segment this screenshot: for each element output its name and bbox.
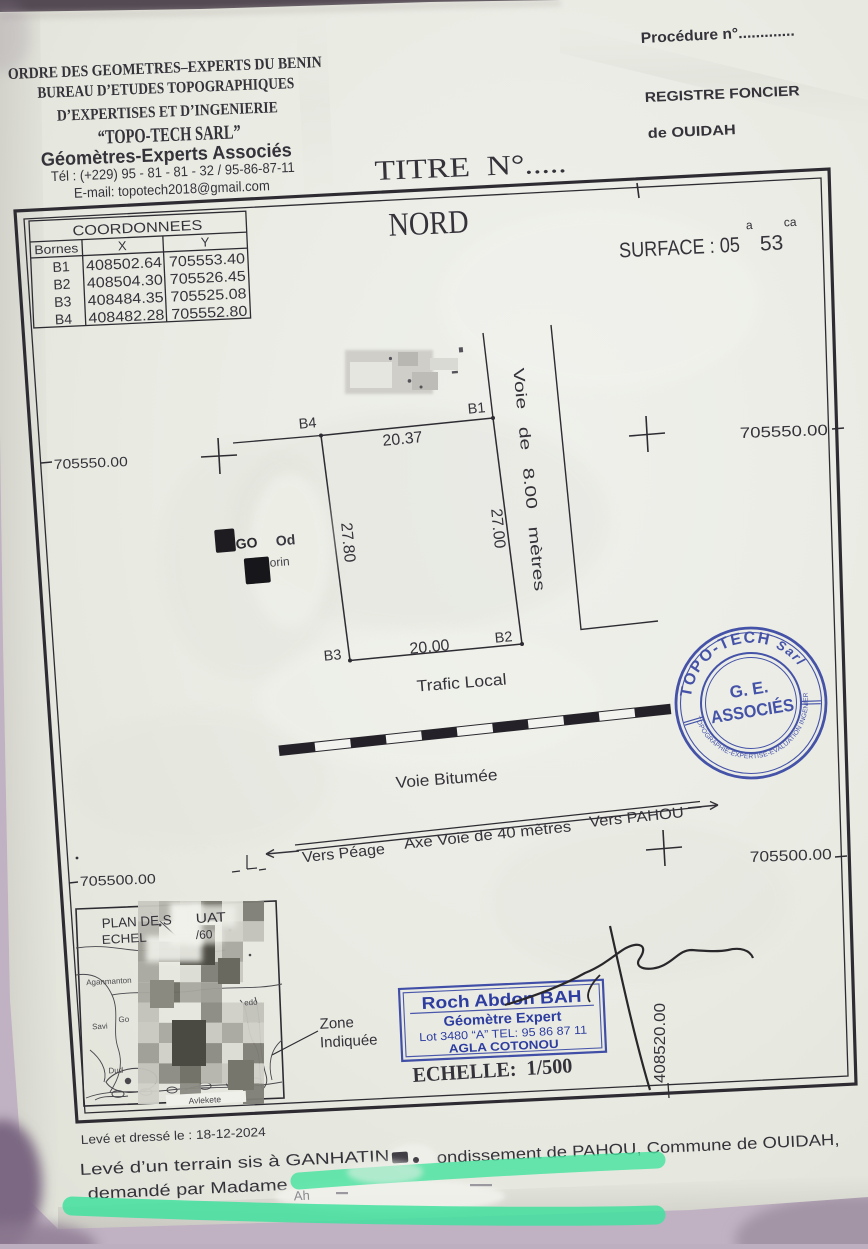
svg-text:edo: edo — [244, 998, 258, 1008]
svg-text:Bornes: Bornes — [34, 241, 79, 257]
svg-text:ECHEL: ECHEL — [101, 931, 147, 947]
svg-text:705550.00: 705550.00 — [54, 454, 129, 472]
svg-text:Zone: Zone — [319, 1014, 354, 1033]
svg-text:GO: GO — [235, 534, 258, 552]
svg-text:408520.00: 408520.00 — [652, 1003, 669, 1083]
svg-text:Avlekete: Avlekete — [188, 1094, 221, 1106]
svg-text:B2: B2 — [494, 629, 513, 646]
svg-text:Od: Od — [275, 531, 296, 549]
svg-text:Ah: Ah — [294, 1188, 311, 1204]
svg-text:705550.00: 705550.00 — [740, 422, 829, 442]
svg-text:a: a — [746, 218, 754, 232]
svg-text:B2: B2 — [53, 276, 71, 293]
svg-text:B4: B4 — [298, 415, 317, 432]
svg-text:705500.00: 705500.00 — [80, 871, 156, 889]
svg-text:UAT: UAT — [195, 909, 226, 926]
svg-text:Go: Go — [118, 1015, 130, 1025]
svg-text:53: 53 — [759, 231, 783, 255]
svg-text:NORD: NORD — [388, 204, 469, 243]
svg-text:/60: /60 — [195, 927, 213, 942]
svg-text:B1: B1 — [467, 400, 486, 417]
svg-text:orin: orin — [269, 554, 290, 570]
svg-text:Dud: Dud — [108, 1066, 123, 1076]
svg-text:B1: B1 — [52, 258, 70, 275]
svg-text:705500.00: 705500.00 — [750, 846, 833, 866]
svg-text:B4: B4 — [55, 311, 73, 328]
svg-text:X: X — [118, 238, 128, 253]
svg-text:ca: ca — [784, 215, 798, 230]
svg-text:B3: B3 — [54, 293, 72, 310]
svg-text:Indiquée: Indiquée — [320, 1032, 378, 1052]
svg-text:Savi: Savi — [92, 1022, 108, 1032]
svg-text:B3: B3 — [323, 647, 342, 664]
svg-text:Y: Y — [200, 234, 210, 249]
